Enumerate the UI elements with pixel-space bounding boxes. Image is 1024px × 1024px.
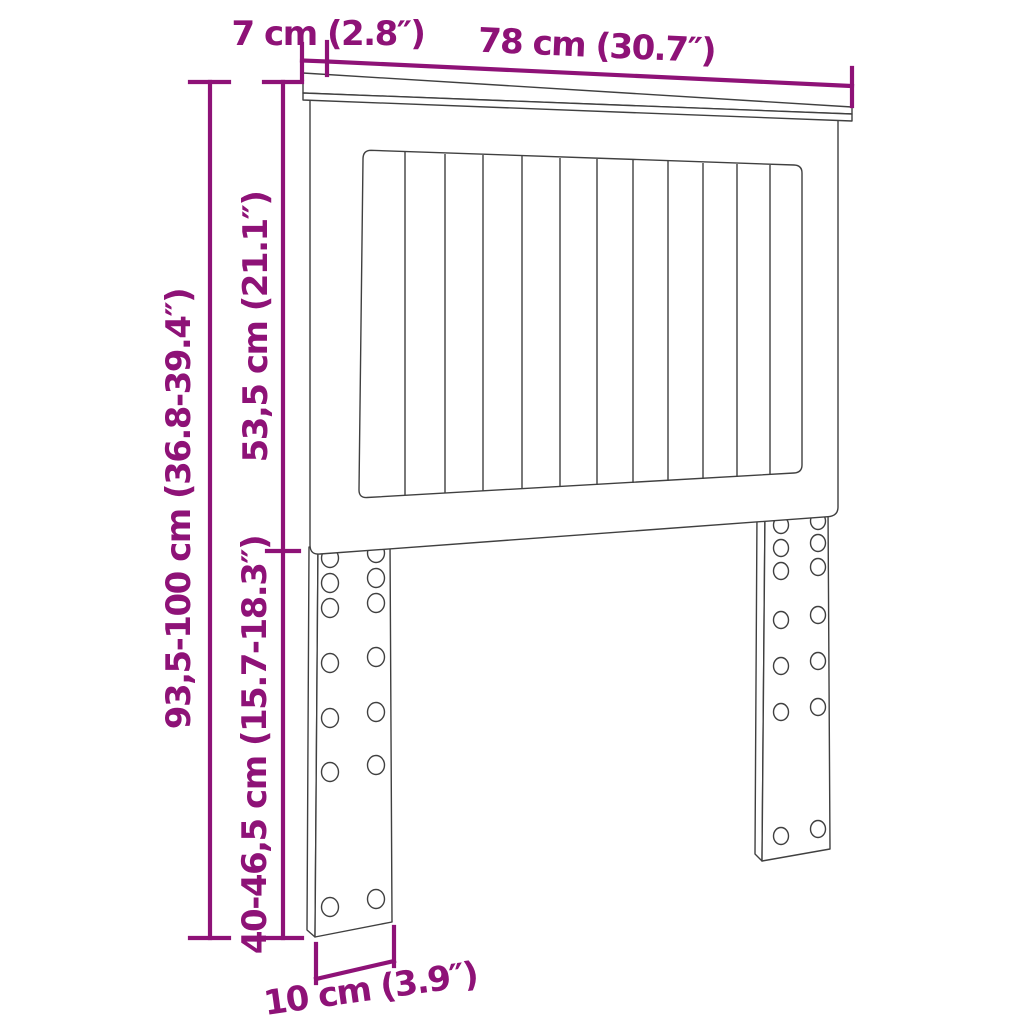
panel-and-leg-height-dimension: 53,5 cm (21.1″) 40-46,5 cm (15.7-18.3″) xyxy=(235,82,302,954)
leg-height-label: 40-46,5 cm (15.7-18.3″) xyxy=(235,536,275,954)
slat-area-border xyxy=(359,150,802,497)
leg-width-dimension: 10 cm (3.9″) xyxy=(261,927,480,1024)
headboard-diagram-canvas: 93,5-100 cm (36.8-39.4″) 53,5 cm (21.1″)… xyxy=(0,0,1024,1024)
right-leg xyxy=(755,508,830,861)
shelf-depth-dimension: 7 cm (2.8″) xyxy=(232,14,425,79)
dimension-diagram: 93,5-100 cm (36.8-39.4″) 53,5 cm (21.1″)… xyxy=(0,0,1024,1024)
width-label: 78 cm (30.7″) xyxy=(477,21,716,72)
shelf-depth-label: 7 cm (2.8″) xyxy=(232,14,425,54)
headboard-panel xyxy=(310,99,838,554)
headboard-drawing xyxy=(303,73,852,937)
total-height-label: 93,5-100 cm (36.8-39.4″) xyxy=(159,289,199,729)
left-leg xyxy=(307,540,392,937)
panel-height-label: 53,5 cm (21.1″) xyxy=(236,192,276,463)
total-height-dimension: 93,5-100 cm (36.8-39.4″) xyxy=(159,82,229,938)
